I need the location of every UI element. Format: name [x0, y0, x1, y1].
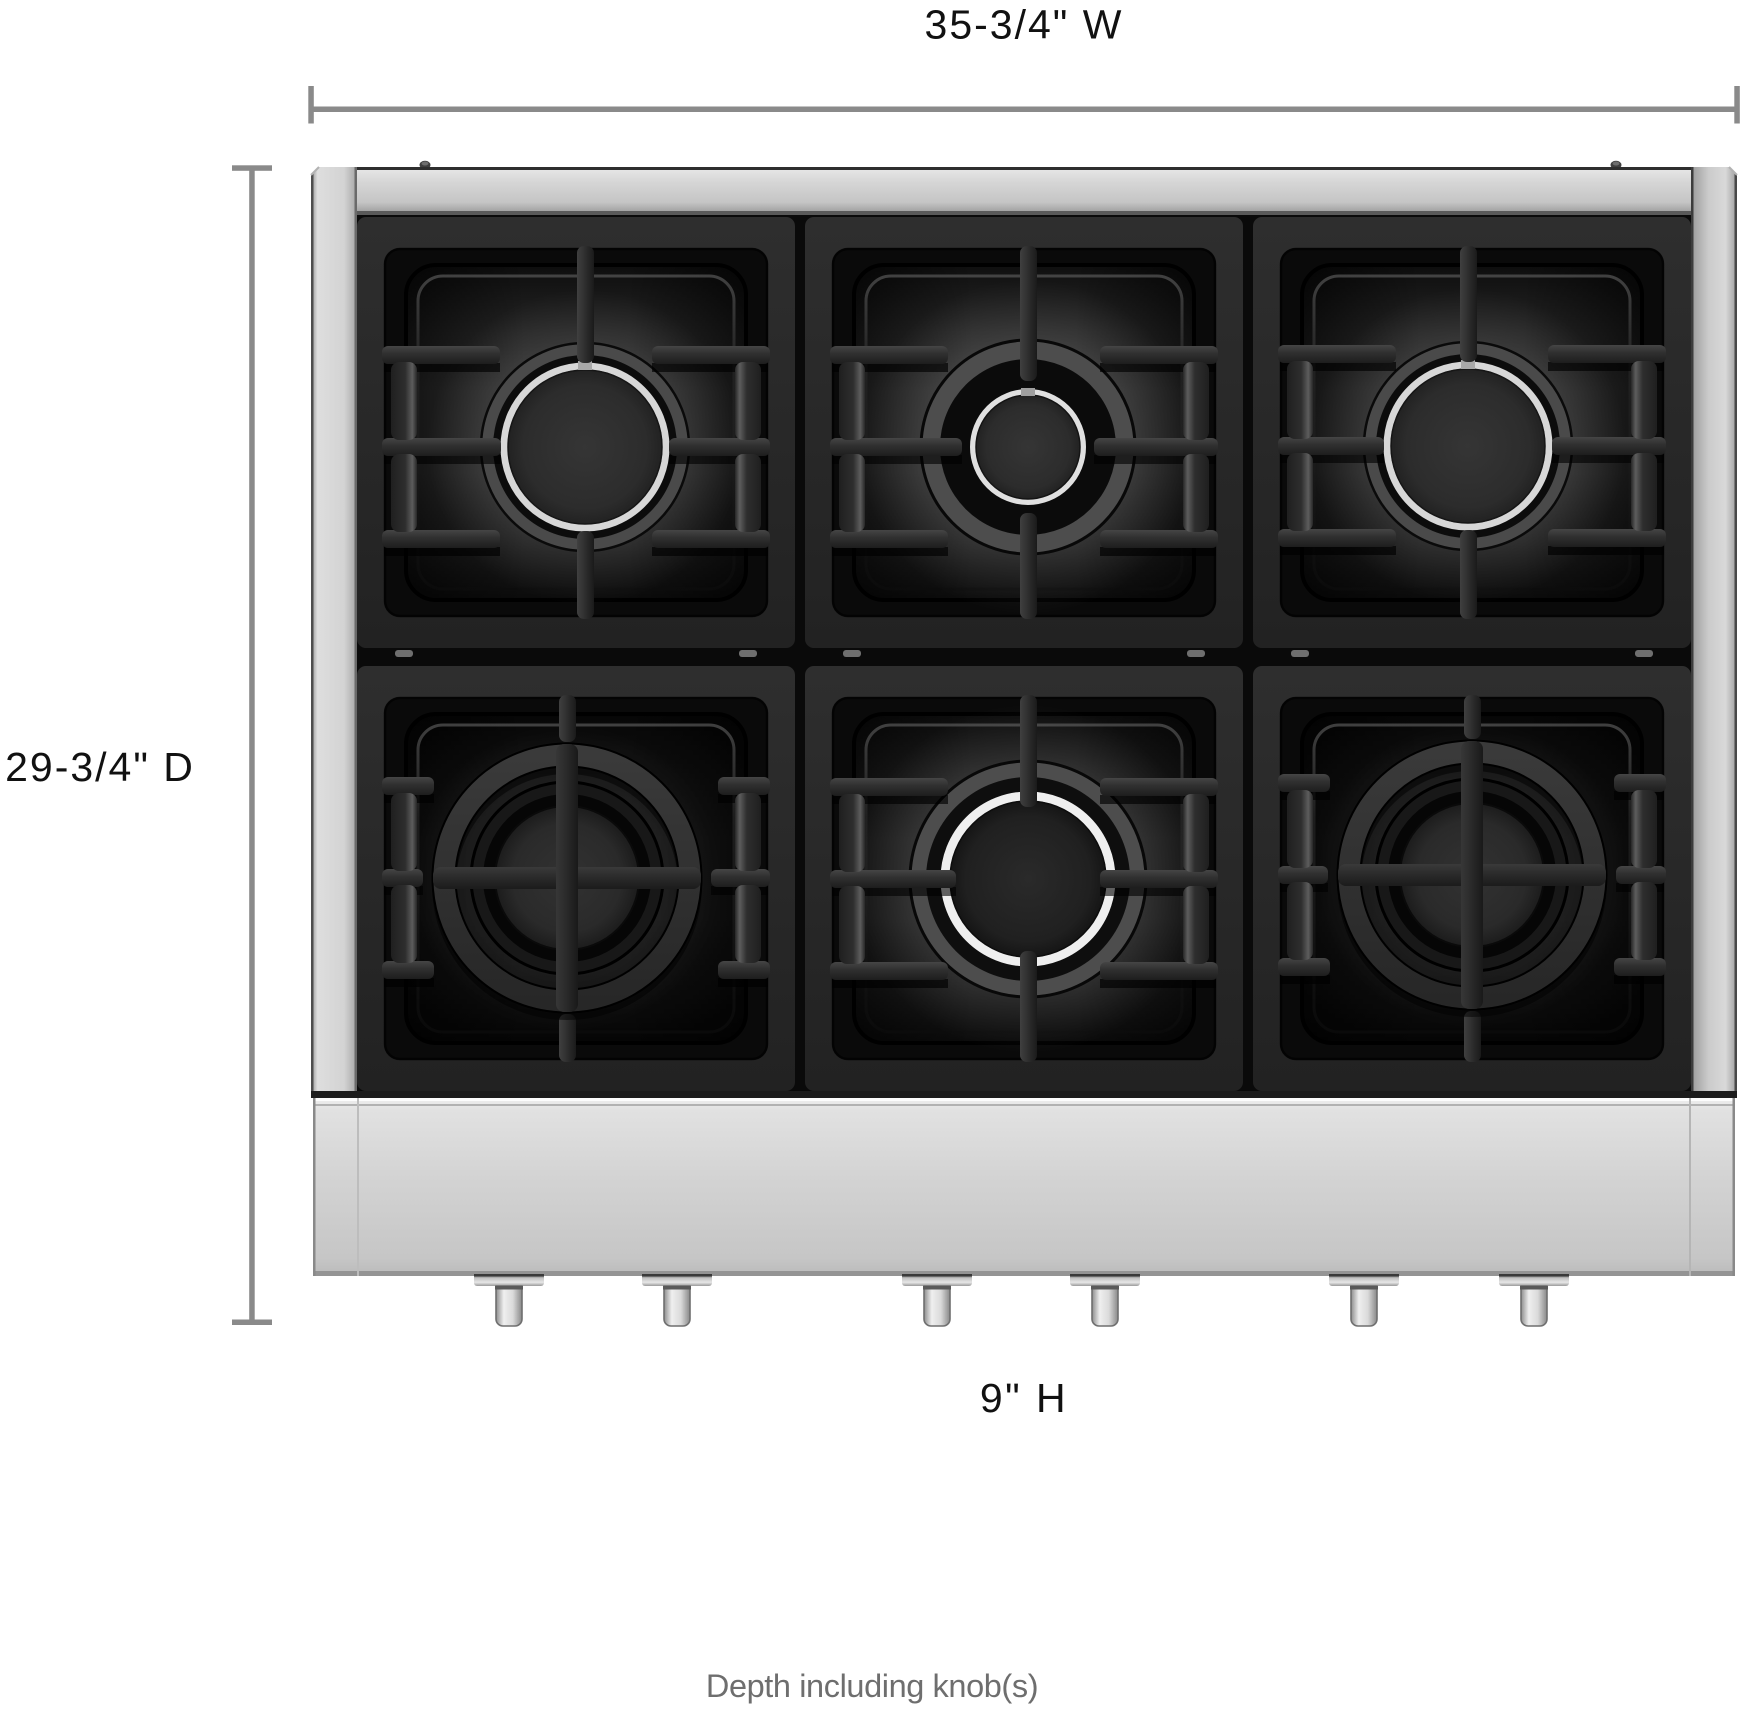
svg-text:9" H: 9" H	[980, 1375, 1068, 1421]
svg-text:35-3/4" W: 35-3/4" W	[925, 2, 1124, 48]
svg-text:Depth including knob(s): Depth including knob(s)	[706, 1668, 1038, 1704]
svg-text:29-3/4" D: 29-3/4" D	[5, 744, 195, 790]
